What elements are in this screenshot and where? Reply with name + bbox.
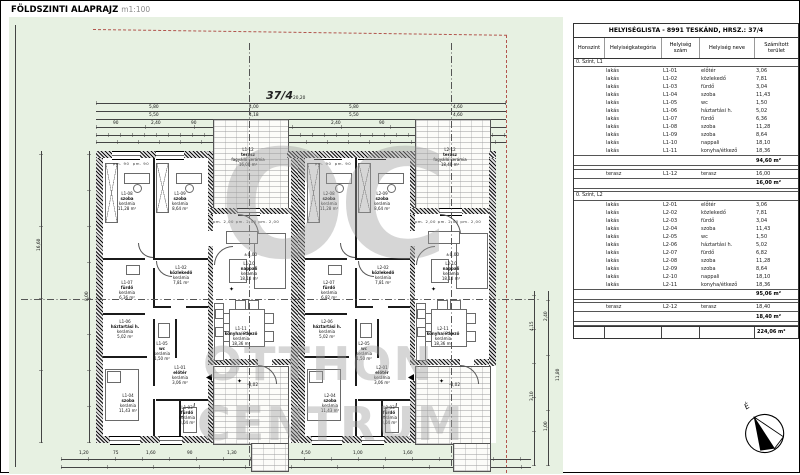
cell: L2-07 (661, 250, 699, 256)
room-area: 1,50 m² (139, 356, 185, 361)
door-swing (340, 243, 355, 258)
cell: lakás (604, 218, 661, 224)
cell: 94,60 m² (754, 158, 798, 164)
cell: lakás (604, 250, 661, 256)
chair (264, 331, 274, 342)
cell: lakás (604, 68, 661, 74)
dim-label: 4,18 (249, 114, 259, 118)
cell: lakás (604, 84, 661, 90)
drawing-frame: FÖLDSZINTI ALAPRAJZ m1:100 37/4 20,20 5,… (0, 0, 800, 473)
cell: 1,50 (754, 234, 798, 240)
group-label: 0. Szint, L2 (574, 192, 798, 201)
table-row: lakásL2-03fürdő3,04 (574, 217, 798, 225)
partition (305, 313, 347, 315)
cell: L1-03 (661, 84, 699, 90)
cell: előtér (699, 68, 754, 74)
plan-title: FÖLDSZINTI ALAPRAJZ m1:100 (11, 5, 150, 15)
cell: 11,43 (754, 92, 798, 98)
col-header: Helyiség szám (661, 38, 699, 58)
cell: wc (699, 100, 754, 106)
partition (305, 258, 347, 260)
cell (574, 327, 604, 338)
cell: fürdő (699, 218, 754, 224)
cell: lakás (604, 148, 661, 154)
level-star-icon: ✦ (229, 287, 234, 293)
room-label-L1-01: L1-01előtérkerámia3,06 m² (157, 365, 203, 385)
table-row: lakásL1-07fürdő6,36 (574, 115, 798, 123)
room-area: 5,02 m² (304, 334, 350, 339)
table-header: Honszint Helyiségkategória Helyiség szám… (574, 38, 798, 59)
cell: L1-06 (661, 108, 699, 114)
cell: 95,06 m² (754, 291, 798, 297)
room-area: 18,36 m² (420, 341, 466, 346)
wc-pan (360, 323, 372, 338)
cell: 16,00 m² (754, 180, 798, 186)
room-area: 18,10 m² (428, 276, 474, 281)
dim-label: 2,40 (331, 122, 341, 126)
table-row: 18,40 m² (574, 311, 798, 321)
dim-label: 2,40 (151, 122, 161, 126)
partition (358, 399, 410, 401)
sink (328, 265, 342, 275)
cell: L2-10 (661, 274, 699, 280)
cell: L1-09 (661, 132, 699, 138)
cell: lakás (604, 76, 661, 82)
room-label-L1-04: L1-04szobakerámia11,43 m² (105, 393, 151, 413)
cell: L1-04 (661, 92, 699, 98)
wall (208, 208, 238, 214)
dim-line (96, 111, 506, 112)
level-marker: ±0,00 (446, 253, 459, 258)
cell: lakás (604, 226, 661, 232)
dim-label: 75 (113, 452, 118, 456)
partition (355, 268, 357, 306)
window (112, 151, 140, 160)
dim-label: 16,60 (38, 239, 42, 251)
room-label-L2-11: L2-11konyha/étkezőkerámia18,36 m² (420, 326, 466, 346)
dim-label: 5,80 (349, 106, 359, 110)
dim-label: 90 (379, 122, 384, 126)
cell: 7,81 (754, 76, 798, 82)
partition (153, 258, 208, 260)
cell: L1-02 (661, 76, 699, 82)
cell: L2-05 (661, 234, 699, 240)
sill-note: pm. 90 pm. 90 (113, 161, 149, 166)
cell: L1-10 (661, 140, 699, 146)
cell: terasz (699, 171, 754, 177)
cell: 18,40 (754, 304, 798, 310)
table-row: lakásL1-10nappali18,10 (574, 139, 798, 147)
cell: 3,06 (754, 202, 798, 208)
partition (153, 399, 155, 436)
table-title: HELYISÉGLISTA - 8991 TESKÁND, HRSZ.: 37/… (574, 24, 798, 38)
cell (604, 327, 661, 338)
room-label-L2-08: L2-08szobakerámia11,28 m² (306, 191, 352, 211)
grand-total-value: 224,06 m² (754, 327, 798, 338)
partition (103, 313, 145, 315)
room-label-L2-02: L2-02közlekedőkerámia7,81 m² (360, 265, 406, 285)
pillow (309, 371, 323, 383)
table-row: lakásL1-09szoba8,64 (574, 131, 798, 139)
north-compass: É (720, 387, 800, 475)
table-row: lakásL2-08szoba11,28 (574, 257, 798, 265)
section-line (21, 299, 541, 300)
door-swing (138, 243, 153, 258)
table-row: lakásL1-06háztartási h.5,02 (574, 107, 798, 115)
dim-label: 1,00 (545, 421, 549, 431)
cell: lakás (604, 202, 661, 208)
sofa (428, 231, 460, 244)
sink (126, 265, 140, 275)
cell: L1-11 (661, 148, 699, 154)
room-label-L1-02: L1-02közlekedőkerámia7,81 m² (158, 265, 204, 285)
sill-note: pm. 90 pm. 90 (315, 161, 351, 166)
table-row: lakásL1-11konyha/étkező18,36 (574, 147, 798, 155)
col-header: Helyiségkategória (604, 38, 661, 58)
cell: fürdő (699, 250, 754, 256)
table-row: teraszL2-12terasz18,40 (574, 303, 798, 311)
room-label-L1-06: L1-06háztartási h.kerámia5,02 m² (102, 319, 148, 339)
dim-line (15, 25, 16, 467)
dim-label: 5,80 (149, 106, 159, 110)
room-area: 5,02 m² (102, 334, 148, 339)
room-label-L2-03: L2-03fürdőkerámia3,04 m² (366, 405, 412, 425)
plan-scale: m1:100 (121, 5, 150, 14)
cell: 11,28 (754, 124, 798, 130)
cell: lakás (604, 210, 661, 216)
desk (326, 173, 352, 184)
table-row: lakásL2-01előtér3,06 (574, 201, 798, 209)
room-area: 3,06 m² (157, 380, 203, 385)
room-label-L1-12: L1-12teraszfagyálló kerámia16,00 m² (225, 147, 271, 167)
cell: konyha/étkező (699, 148, 754, 154)
desk (378, 173, 404, 184)
desk (124, 173, 150, 184)
window (156, 151, 184, 160)
wall (410, 246, 415, 364)
sink (417, 309, 426, 319)
cell: lakás (604, 132, 661, 138)
cell: háztartási h. (699, 242, 754, 248)
cell: lakás (604, 116, 661, 122)
partition (103, 258, 145, 260)
level-star-icon: ✦ (439, 379, 444, 385)
wall (287, 151, 415, 158)
room-label-L2-12: L2-12teraszfagyálló kerámia18,40 m² (427, 147, 473, 167)
cell: L2-02 (661, 210, 699, 216)
parcel-number: 37/4 (266, 89, 293, 102)
cell: L2-06 (661, 242, 699, 248)
col-header: Honszint (574, 38, 604, 58)
cell: közlekedő (699, 210, 754, 216)
table-row: lakásL1-03fürdő3,04 (574, 83, 798, 91)
table-row: 95,06 m² (574, 289, 798, 299)
room-area: 11,28 m² (306, 206, 352, 211)
dim-label: 1,20 (79, 452, 89, 456)
room-label-L1-11: L1-11konyha/étkezőkerámia18,36 m² (218, 326, 264, 346)
room-area: 3,04 m² (366, 420, 412, 425)
cell: lakás (604, 274, 661, 280)
cell: L1-12 (661, 171, 699, 177)
entry-court-paving (415, 366, 491, 445)
partition (186, 306, 208, 308)
level-star-icon: ✦ (431, 287, 436, 293)
window (312, 436, 342, 445)
table-row: lakásL2-09szoba8,64 (574, 265, 798, 273)
cell: fürdő (699, 116, 754, 122)
plan-title-text: FÖLDSZINTI ALAPRAJZ (11, 5, 118, 15)
room-label-L2-01: L2-01előtérkerámia3,06 m² (359, 365, 405, 385)
desk (176, 173, 202, 184)
cell: szoba (699, 124, 754, 130)
cell: L2-08 (661, 258, 699, 264)
cell: 8,64 (754, 132, 798, 138)
wall (96, 151, 103, 443)
table-row: lakásL1-01előtér3,06 (574, 67, 798, 75)
cell: L2-12 (661, 304, 699, 310)
cell: lakás (604, 234, 661, 240)
cell: 3,04 (754, 84, 798, 90)
room-area: 1,50 m² (341, 356, 387, 361)
cell: L1-07 (661, 116, 699, 122)
cell: 18,10 (754, 274, 798, 280)
table-row: lakásL2-06háztartási h.5,02 (574, 241, 798, 249)
chair (235, 300, 246, 310)
cell: 1,50 (754, 100, 798, 106)
room-area: 18,40 m² (427, 162, 473, 167)
chair (466, 331, 476, 342)
dim-ticks (532, 291, 536, 466)
level-star-icon: ✦ (237, 379, 242, 385)
room-label-L1-03: L1-03fürdőkerámia3,04 m² (164, 405, 210, 425)
table-row: lakásL2-11konyha/étkező18,36 (574, 281, 798, 289)
dim-label: 4,60 (453, 114, 463, 118)
cell: háztartási h. (699, 108, 754, 114)
cell: 18,40 m² (754, 314, 798, 320)
dim-label: 1,00 (353, 452, 363, 456)
room-label-L2-07: L2-07fürdőkerámia6,82 m² (306, 280, 352, 300)
cell: 5,02 (754, 242, 798, 248)
room-label-L2-10: L2-10nappalikerámia18,10 m² (428, 261, 474, 281)
entry-court-paving (213, 366, 289, 445)
cell: előtér (699, 202, 754, 208)
cell: 18,10 (754, 140, 798, 146)
cell: 16,00 (754, 171, 798, 177)
cell: L2-04 (661, 226, 699, 232)
cell: L2-11 (661, 282, 699, 288)
table-row: lakásL1-04szoba11,43 (574, 91, 798, 99)
dim-label: 20,20 (293, 97, 305, 101)
partition (153, 268, 155, 306)
table-row: lakásL2-07fürdő6,82 (574, 249, 798, 257)
cell: közlekedő (699, 76, 754, 82)
cell: wc (699, 234, 754, 240)
room-area: 18,36 m² (218, 341, 264, 346)
table-grand-total-row: 224,06 m² (574, 326, 798, 338)
dim-label: 4,00 (249, 106, 259, 110)
partition (156, 399, 208, 401)
partition (153, 306, 171, 308)
room-area: 8,64 m² (359, 206, 405, 211)
table-body: 0. Szint, L1lakásL1-01előtér3,06lakásL1-… (574, 59, 798, 326)
group-label: 0. Szint, L1 (574, 59, 798, 68)
cell: nappali (699, 140, 754, 146)
wall (489, 151, 496, 366)
room-area: 8,64 m² (157, 206, 203, 211)
cell: lakás (604, 282, 661, 288)
cell: lakás (604, 242, 661, 248)
room-area: 11,43 m² (307, 408, 353, 413)
cell: szoba (699, 266, 754, 272)
dim-label: 90 (187, 452, 192, 456)
wall (260, 208, 291, 214)
cell: 6,82 (754, 250, 798, 256)
dim-label: 1,30 (227, 452, 237, 456)
table-row: lakásL2-05wc1,50 (574, 233, 798, 241)
cell: szoba (699, 92, 754, 98)
cell: terasz (604, 304, 661, 310)
dim-label: 5,50 (149, 114, 159, 118)
room-area: 7,81 m² (360, 280, 406, 285)
cell: 3,04 (754, 218, 798, 224)
room-label-L1-08: L1-08szobakerámia11,28 m² (104, 191, 150, 211)
cell: L1-01 (661, 68, 699, 74)
cell: 6,36 (754, 116, 798, 122)
room-label-L2-09: L2-09szobakerámia8,64 m² (359, 191, 405, 211)
cell: nappali (699, 274, 754, 280)
partition (355, 399, 357, 436)
cell (661, 327, 699, 338)
cell: lakás (604, 108, 661, 114)
dim-label: 3,10 (531, 391, 535, 401)
room-schedule-table: HELYISÉGLISTA - 8991 TESKÁND, HRSZ.: 37/… (573, 23, 799, 339)
dim-label: 2,40 (545, 311, 549, 321)
dim-label: 90 (113, 122, 118, 126)
dim-ticks (39, 151, 43, 443)
cell: fürdő (699, 84, 754, 90)
cell: szoba (699, 132, 754, 138)
cell: 7,81 (754, 210, 798, 216)
dim-label: 11,80 (557, 369, 561, 381)
cell: 5,02 (754, 108, 798, 114)
room-area: 18,10 m² (226, 276, 272, 281)
room-label-L1-10: L1-10nappalikerámia18,10 m² (226, 261, 272, 281)
dim-label: 1,60 (403, 452, 413, 456)
cell: terasz (604, 171, 661, 177)
dim-label: 4,15 (531, 321, 535, 331)
cell: lakás (604, 140, 661, 146)
col-header: Számított terület (754, 38, 798, 58)
cell: L1-08 (661, 124, 699, 130)
room-area: 7,81 m² (158, 280, 204, 285)
cell: 11,28 (754, 258, 798, 264)
table-row: lakásL1-02közlekedő7,81 (574, 75, 798, 83)
lintel-note: pm. 2,00 pm. 2,00 pm. 2,00 (415, 219, 481, 224)
partition (355, 258, 410, 260)
cell: lakás (604, 124, 661, 130)
wc-pan (158, 323, 170, 338)
table-row: teraszL1-12terasz16,00 (574, 170, 798, 178)
wall (208, 246, 213, 364)
table-row: lakásL2-04szoba11,43 (574, 225, 798, 233)
cell: 18,36 (754, 148, 798, 154)
col-header: Helyiség neve (699, 38, 754, 58)
room-label-L1-07: L1-07fürdőkerámia6,36 m² (104, 280, 150, 300)
room-area: 6,82 m² (306, 295, 352, 300)
cell: 8,64 (754, 266, 798, 272)
room-area: 11,43 m² (105, 408, 151, 413)
table-row: lakásL2-02közlekedő7,81 (574, 209, 798, 217)
window (110, 436, 140, 445)
room-area: 6,36 m² (104, 295, 150, 300)
sink (215, 309, 224, 319)
level-marker: -0,02 (449, 383, 460, 388)
wall (298, 151, 305, 443)
table-row: lakásL1-05wc1,50 (574, 99, 798, 107)
room-area: 3,04 m² (164, 420, 210, 425)
room-label-L2-06: L2-06háztartási h.kerámia5,02 m² (304, 319, 350, 339)
partition (388, 306, 410, 308)
lintel-note: pm. 2,00 pm. 2,00 pm. 2,00 (213, 219, 279, 224)
window (362, 436, 384, 445)
room-label-L2-04: L2-04szobakerámia11,43 m² (307, 393, 353, 413)
cell: 18,36 (754, 282, 798, 288)
cell: terasz (699, 304, 754, 310)
cell: lakás (604, 92, 661, 98)
partition (355, 158, 357, 258)
cell: L2-01 (661, 202, 699, 208)
dim-label: 4,60 (453, 106, 463, 110)
wall (489, 151, 496, 158)
level-marker: -0,02 (247, 383, 258, 388)
cell: L2-03 (661, 218, 699, 224)
room-label-L2-05: L2-05wckerámia1,50 m² (341, 341, 387, 361)
wall (272, 359, 291, 365)
partition (355, 306, 373, 308)
chair (466, 313, 476, 324)
cell: lakás (604, 100, 661, 106)
window (160, 436, 182, 445)
chair (437, 300, 448, 310)
table-row: lakásL2-10nappali18,10 (574, 273, 798, 281)
dim-label: 5,50 (349, 114, 359, 118)
cell: lakás (604, 258, 661, 264)
wall (410, 208, 440, 214)
cell: L2-09 (661, 266, 699, 272)
cell: konyha/étkező (699, 282, 754, 288)
cell: szoba (699, 258, 754, 264)
dim-label: 4,50 (301, 452, 311, 456)
cell: 3,06 (754, 68, 798, 74)
sofa (226, 231, 258, 244)
table-row: 94,60 m² (574, 155, 798, 165)
table-row: lakásL1-08szoba11,28 (574, 123, 798, 131)
cell: L1-05 (661, 100, 699, 106)
cell (699, 327, 754, 338)
room-area: 11,28 m² (104, 206, 150, 211)
room-label-L1-09: L1-09szobakerámia8,64 m² (157, 191, 203, 211)
level-marker: ±0,00 (244, 253, 257, 258)
pillow (107, 371, 121, 383)
room-area: 3,06 m² (359, 380, 405, 385)
dim-label: 90 (191, 122, 196, 126)
walkway-paving (453, 443, 491, 472)
cell: szoba (699, 226, 754, 232)
dim-label: 1,60 (146, 452, 156, 456)
chair (264, 313, 274, 324)
partition (153, 158, 155, 258)
room-area: 16,00 m² (225, 162, 271, 167)
